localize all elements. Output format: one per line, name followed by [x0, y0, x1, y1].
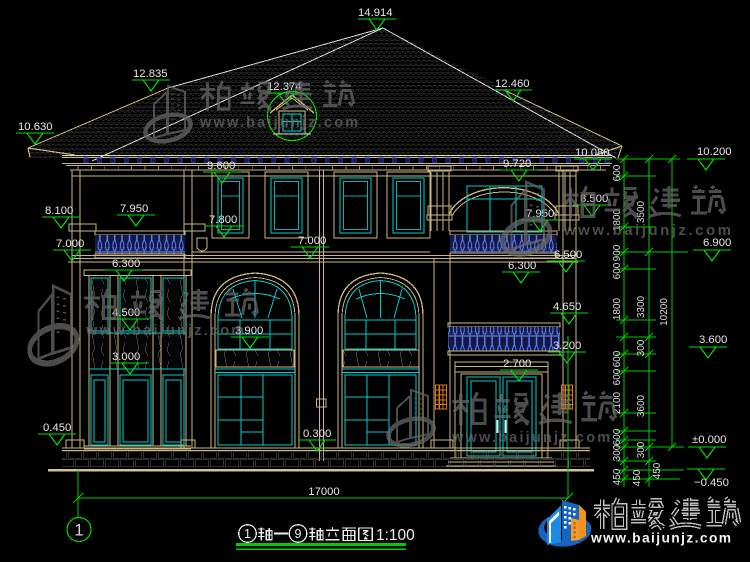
svg-text:12.374: 12.374 — [267, 81, 302, 93]
svg-text:www.baijunjz.com: www.baijunjz.com — [590, 531, 732, 546]
svg-text:9: 9 — [295, 527, 302, 541]
svg-text:6.300: 6.300 — [508, 260, 536, 272]
svg-text:900: 900 — [612, 244, 623, 261]
svg-text:1: 1 — [244, 527, 251, 541]
svg-text:600: 600 — [612, 368, 623, 385]
svg-text:300: 300 — [612, 444, 623, 461]
svg-text:9.720: 9.720 — [503, 158, 531, 170]
svg-text:1800: 1800 — [612, 297, 623, 320]
svg-text:10.630: 10.630 — [18, 121, 53, 133]
svg-text:0.300: 0.300 — [303, 428, 331, 440]
svg-text:7.950: 7.950 — [120, 203, 148, 215]
svg-text:12.835: 12.835 — [133, 68, 168, 80]
svg-text:300: 300 — [636, 441, 647, 458]
svg-text:3.000: 3.000 — [112, 351, 140, 363]
svg-text:9.600: 9.600 — [207, 160, 235, 172]
svg-text:1:100: 1:100 — [376, 527, 415, 544]
svg-text:3500: 3500 — [636, 200, 647, 223]
svg-text:6.300: 6.300 — [112, 258, 140, 270]
svg-text:www.baijunjz.com: www.baijunjz.com — [563, 222, 733, 239]
svg-text:7.800: 7.800 — [209, 214, 237, 226]
svg-text:10.200: 10.200 — [697, 146, 732, 158]
svg-text:600: 600 — [612, 428, 623, 445]
svg-text:600: 600 — [612, 350, 623, 367]
svg-text:14.914: 14.914 — [358, 7, 393, 19]
svg-text:300: 300 — [636, 339, 647, 356]
svg-text:17000: 17000 — [308, 486, 339, 498]
svg-text:1: 1 — [74, 521, 83, 540]
svg-text:www.baijunjz.com: www.baijunjz.com — [85, 323, 246, 339]
svg-text:−0.450: −0.450 — [694, 477, 729, 489]
svg-text:3600: 3600 — [636, 394, 647, 417]
svg-text:www.baijunjz.com: www.baijunjz.com — [199, 115, 360, 131]
svg-text:600: 600 — [612, 262, 623, 279]
svg-text:7.000: 7.000 — [56, 238, 84, 250]
svg-text:8.100: 8.100 — [45, 205, 73, 217]
svg-text:3300: 3300 — [636, 295, 647, 318]
svg-text:4.650: 4.650 — [553, 301, 581, 313]
svg-text:10.080: 10.080 — [575, 147, 610, 159]
svg-text:600: 600 — [612, 164, 623, 181]
svg-text:450: 450 — [632, 469, 643, 486]
svg-text:2.700: 2.700 — [503, 358, 531, 370]
svg-text:6.500: 6.500 — [554, 249, 582, 261]
svg-text:0.450: 0.450 — [43, 422, 71, 434]
svg-text:www.baijunjz.com: www.baijunjz.com — [451, 430, 612, 446]
svg-text:12.460: 12.460 — [495, 78, 530, 90]
svg-text:450: 450 — [612, 468, 623, 485]
svg-text:10200: 10200 — [659, 298, 670, 326]
svg-text:3.200: 3.200 — [553, 340, 581, 352]
svg-text:±0.000: ±0.000 — [692, 434, 726, 446]
svg-text:450: 450 — [652, 462, 663, 479]
svg-text:7.000: 7.000 — [298, 235, 326, 247]
svg-text:3.600: 3.600 — [699, 334, 727, 346]
